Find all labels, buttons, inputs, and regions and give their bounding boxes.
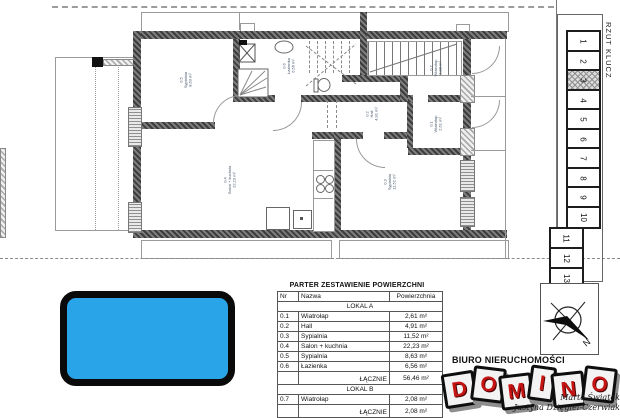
table-header-row: Nr Nazwa Powierzchnia: [278, 292, 443, 302]
stove-burner: [325, 175, 334, 184]
total-row-lokal-a: ŁĄCZNIE56,46 m²: [278, 372, 443, 385]
key-plan-unit-10: 10: [566, 206, 601, 229]
office-name: BIURO NIERUCHOMOŚCI: [452, 355, 618, 365]
stove-burner: [316, 184, 325, 193]
compass-box: N: [540, 283, 599, 355]
agent-signatures: Marta Świątek Justyna Dzięgiel-Czerwiak: [420, 393, 620, 413]
table-title: PARTER ZESTAWIENIE POWIERZCHNI: [277, 282, 437, 289]
signature-1: Marta Świątek: [420, 393, 620, 403]
compass-rose-icon: N: [541, 284, 598, 354]
stove-burner: [325, 184, 334, 193]
total-row-lokal-b: ŁĄCZNIE2,08 m²: [278, 405, 443, 418]
table-row: 0.2Hall4,91 m²: [278, 322, 443, 332]
table-row: 0.4Salon + kuchnia22,23 m²: [278, 342, 443, 352]
table-row: 0.5Sypialnia8,63 m²: [278, 352, 443, 362]
compass-north-label: N: [581, 337, 592, 349]
table-row: 0.1Wiatrołap2,61 m²: [278, 312, 443, 322]
table-row: 0.6Łazienka6,56 m²: [278, 362, 443, 372]
area-summary-table: PARTER ZESTAWIENIE POWIERZCHNI Nr Nazwa …: [277, 282, 437, 418]
stove-burner: [316, 175, 325, 184]
key-plan-title: RZUT KLUCZ: [604, 22, 613, 79]
col-header-nr: Nr: [278, 292, 299, 302]
counter-divider: [313, 198, 333, 199]
floor-plan-sheet: 0.5Sypialnia8,63 m² 0.6Łazienka6,56 m² 0…: [0, 0, 620, 418]
section-row: LOKAL A: [278, 302, 443, 312]
table-row: 0.3Sypialnia11,52 m²: [278, 332, 443, 342]
col-header-nazwa: Nazwa: [299, 292, 390, 302]
plan-detail-lines: [0, 0, 620, 280]
section-row: LOKAL B: [278, 385, 443, 395]
sink-drain: [300, 217, 303, 220]
counter-divider: [313, 170, 333, 171]
kitchen-cabinet: [266, 207, 290, 230]
signature-2: Justyna Dzięgiel-Czerwiak: [420, 403, 620, 413]
col-header-powierzchnia: Powierzchnia: [390, 292, 443, 302]
blue-redaction-box: [60, 291, 235, 386]
table-row: 0.7Wiatrołap2,08 m²: [278, 395, 443, 405]
